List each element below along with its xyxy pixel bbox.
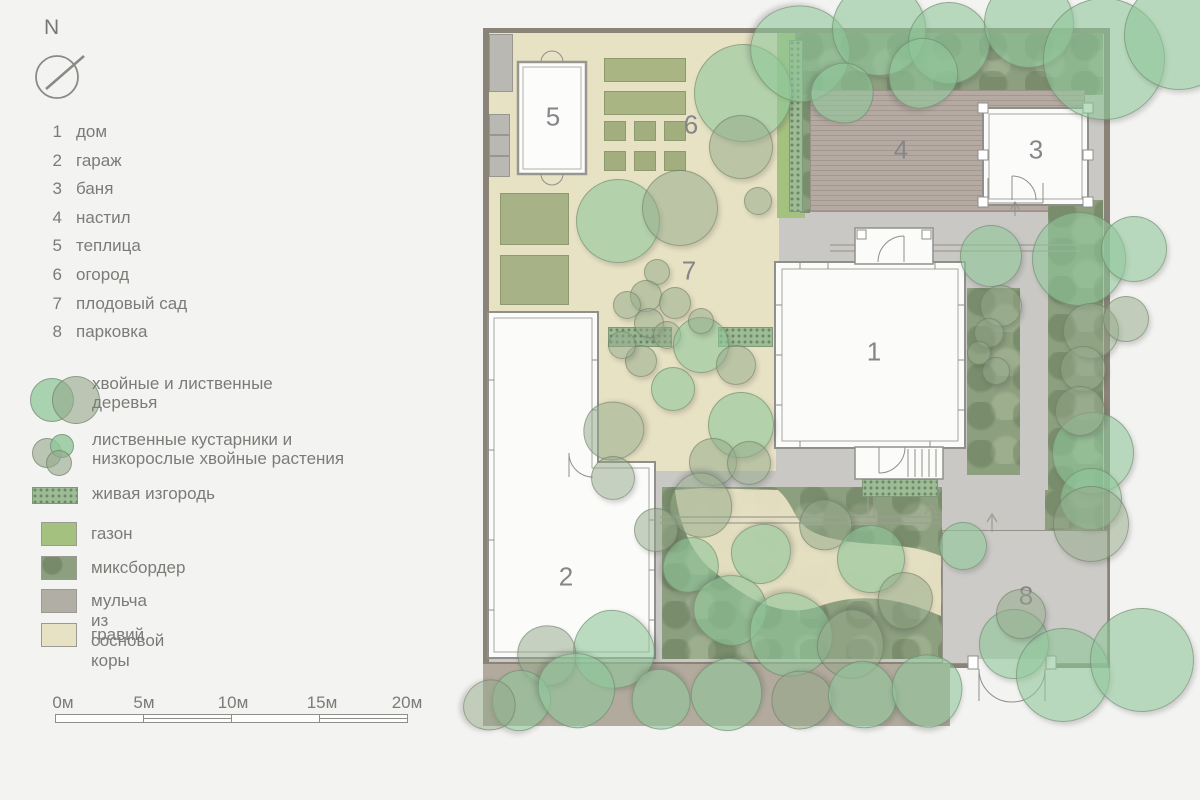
- legend-item-ogorod: 6огород: [46, 265, 187, 294]
- north-label: N: [44, 16, 59, 40]
- landscape-plan-page: N 1дом 2гараж 3баня 4настил 5теплица 6ог…: [0, 0, 1200, 800]
- hedge-strip: [862, 479, 938, 497]
- plant-legend-label: хвойные и лиственные: [92, 374, 273, 393]
- garden-bed: [634, 151, 656, 171]
- legend-item-sad: 7плодовый сад: [46, 294, 187, 323]
- garden-bed: [500, 193, 569, 245]
- plan-label-deck: 4: [894, 135, 908, 166]
- legend-item-banya: 3баня: [46, 179, 187, 208]
- scale-segment: [55, 714, 144, 723]
- plan-label-kitchen-garden: 6: [684, 110, 698, 141]
- plant-legend-label: живая изгородь: [92, 484, 392, 503]
- surface-label: миксбордер: [91, 558, 185, 578]
- garden-bed: [604, 151, 626, 171]
- zone-mixborder-south: [662, 487, 942, 659]
- plan-label-banya: 3: [1029, 135, 1043, 166]
- scale-segment: [231, 714, 320, 723]
- garden-bed: [634, 121, 656, 141]
- plan-label-house: 1: [867, 337, 881, 368]
- legend-item-number: 8: [46, 322, 62, 341]
- utility-block: [489, 156, 510, 177]
- compass-icon: [36, 56, 84, 98]
- zone-mixborder-east-fence: [1048, 200, 1103, 530]
- scale-label: 5м: [133, 693, 154, 713]
- legend-item-label: огород: [76, 265, 129, 284]
- plan-label-orchard: 7: [682, 256, 696, 287]
- legend-item-label: дом: [76, 122, 107, 141]
- legend-item-number: 4: [46, 208, 62, 227]
- utility-block: [489, 135, 510, 156]
- legend-item-nastil: 4настил: [46, 208, 187, 237]
- mulch-swatch: [41, 589, 77, 613]
- scale-segment: [319, 714, 408, 723]
- legend-item-garazh: 2гараж: [46, 151, 187, 180]
- garden-bed: [664, 121, 686, 141]
- legend-item-parkovka: 8парковка: [46, 322, 187, 351]
- scale-label: 15м: [307, 693, 338, 713]
- lawn-swatch: [41, 522, 77, 546]
- garden-bed: [604, 91, 686, 115]
- garden-bed: [604, 121, 626, 141]
- tree-icon: [1101, 216, 1167, 282]
- legend-item-label: плодовый сад: [76, 294, 187, 313]
- gravel-swatch: [41, 623, 77, 647]
- zone-mulch-strip: [483, 664, 950, 726]
- plant-legend-label: лиственные кустарники и: [92, 430, 292, 449]
- hedge-strip: [608, 327, 672, 347]
- plan-label-garage: 2: [559, 562, 573, 593]
- legend-item-label: теплица: [76, 236, 141, 255]
- garden-bed: [664, 151, 686, 171]
- legend-item-number: 2: [46, 151, 62, 170]
- zone-mixborder-patch: [1045, 490, 1069, 530]
- scale-label: 10м: [218, 693, 249, 713]
- mixborder-swatch: [41, 556, 77, 580]
- legend-item-number: 7: [46, 294, 62, 313]
- legend-item-label: парковка: [76, 322, 148, 341]
- garden-bed: [500, 255, 569, 305]
- plan-label-greenhouse: 5: [546, 102, 560, 133]
- hedge-symbol-icon: [32, 487, 78, 504]
- utility-block: [489, 114, 510, 135]
- zone-mixborder-east-house: [967, 288, 1020, 475]
- scale-segment: [143, 714, 232, 723]
- scale-bar: 0м 5м 10м 15м 20м: [55, 693, 414, 725]
- legend-item-number: 1: [46, 122, 62, 141]
- surface-label: газон: [91, 524, 133, 544]
- legend-item-number: 5: [46, 236, 62, 255]
- shrub-symbol-icon: [46, 450, 72, 476]
- hedge-strip: [789, 40, 803, 212]
- legend-item-label: гараж: [76, 151, 122, 170]
- tree-icon: [1124, 0, 1200, 90]
- zone-mixborder-north: [795, 33, 1103, 95]
- surface-label: гравий: [91, 625, 144, 645]
- scale-track: [55, 714, 412, 723]
- legend-list: 1дом 2гараж 3баня 4настил 5теплица 6огор…: [46, 122, 187, 351]
- utility-block: [489, 34, 513, 92]
- legend-item-label: баня: [76, 179, 113, 198]
- scale-label: 0м: [52, 693, 73, 713]
- legend-item-teplitsa: 5теплица: [46, 236, 187, 265]
- garden-bed: [604, 58, 686, 82]
- scale-label: 20м: [392, 693, 423, 713]
- legend-item-number: 6: [46, 265, 62, 284]
- plan-label-parking: 8: [1019, 581, 1033, 612]
- legend-item-label: настил: [76, 208, 131, 227]
- legend-item-dom: 1дом: [46, 122, 187, 151]
- legend-item-number: 3: [46, 179, 62, 198]
- zone-deck: [810, 90, 1085, 212]
- hedge-strip: [718, 327, 773, 347]
